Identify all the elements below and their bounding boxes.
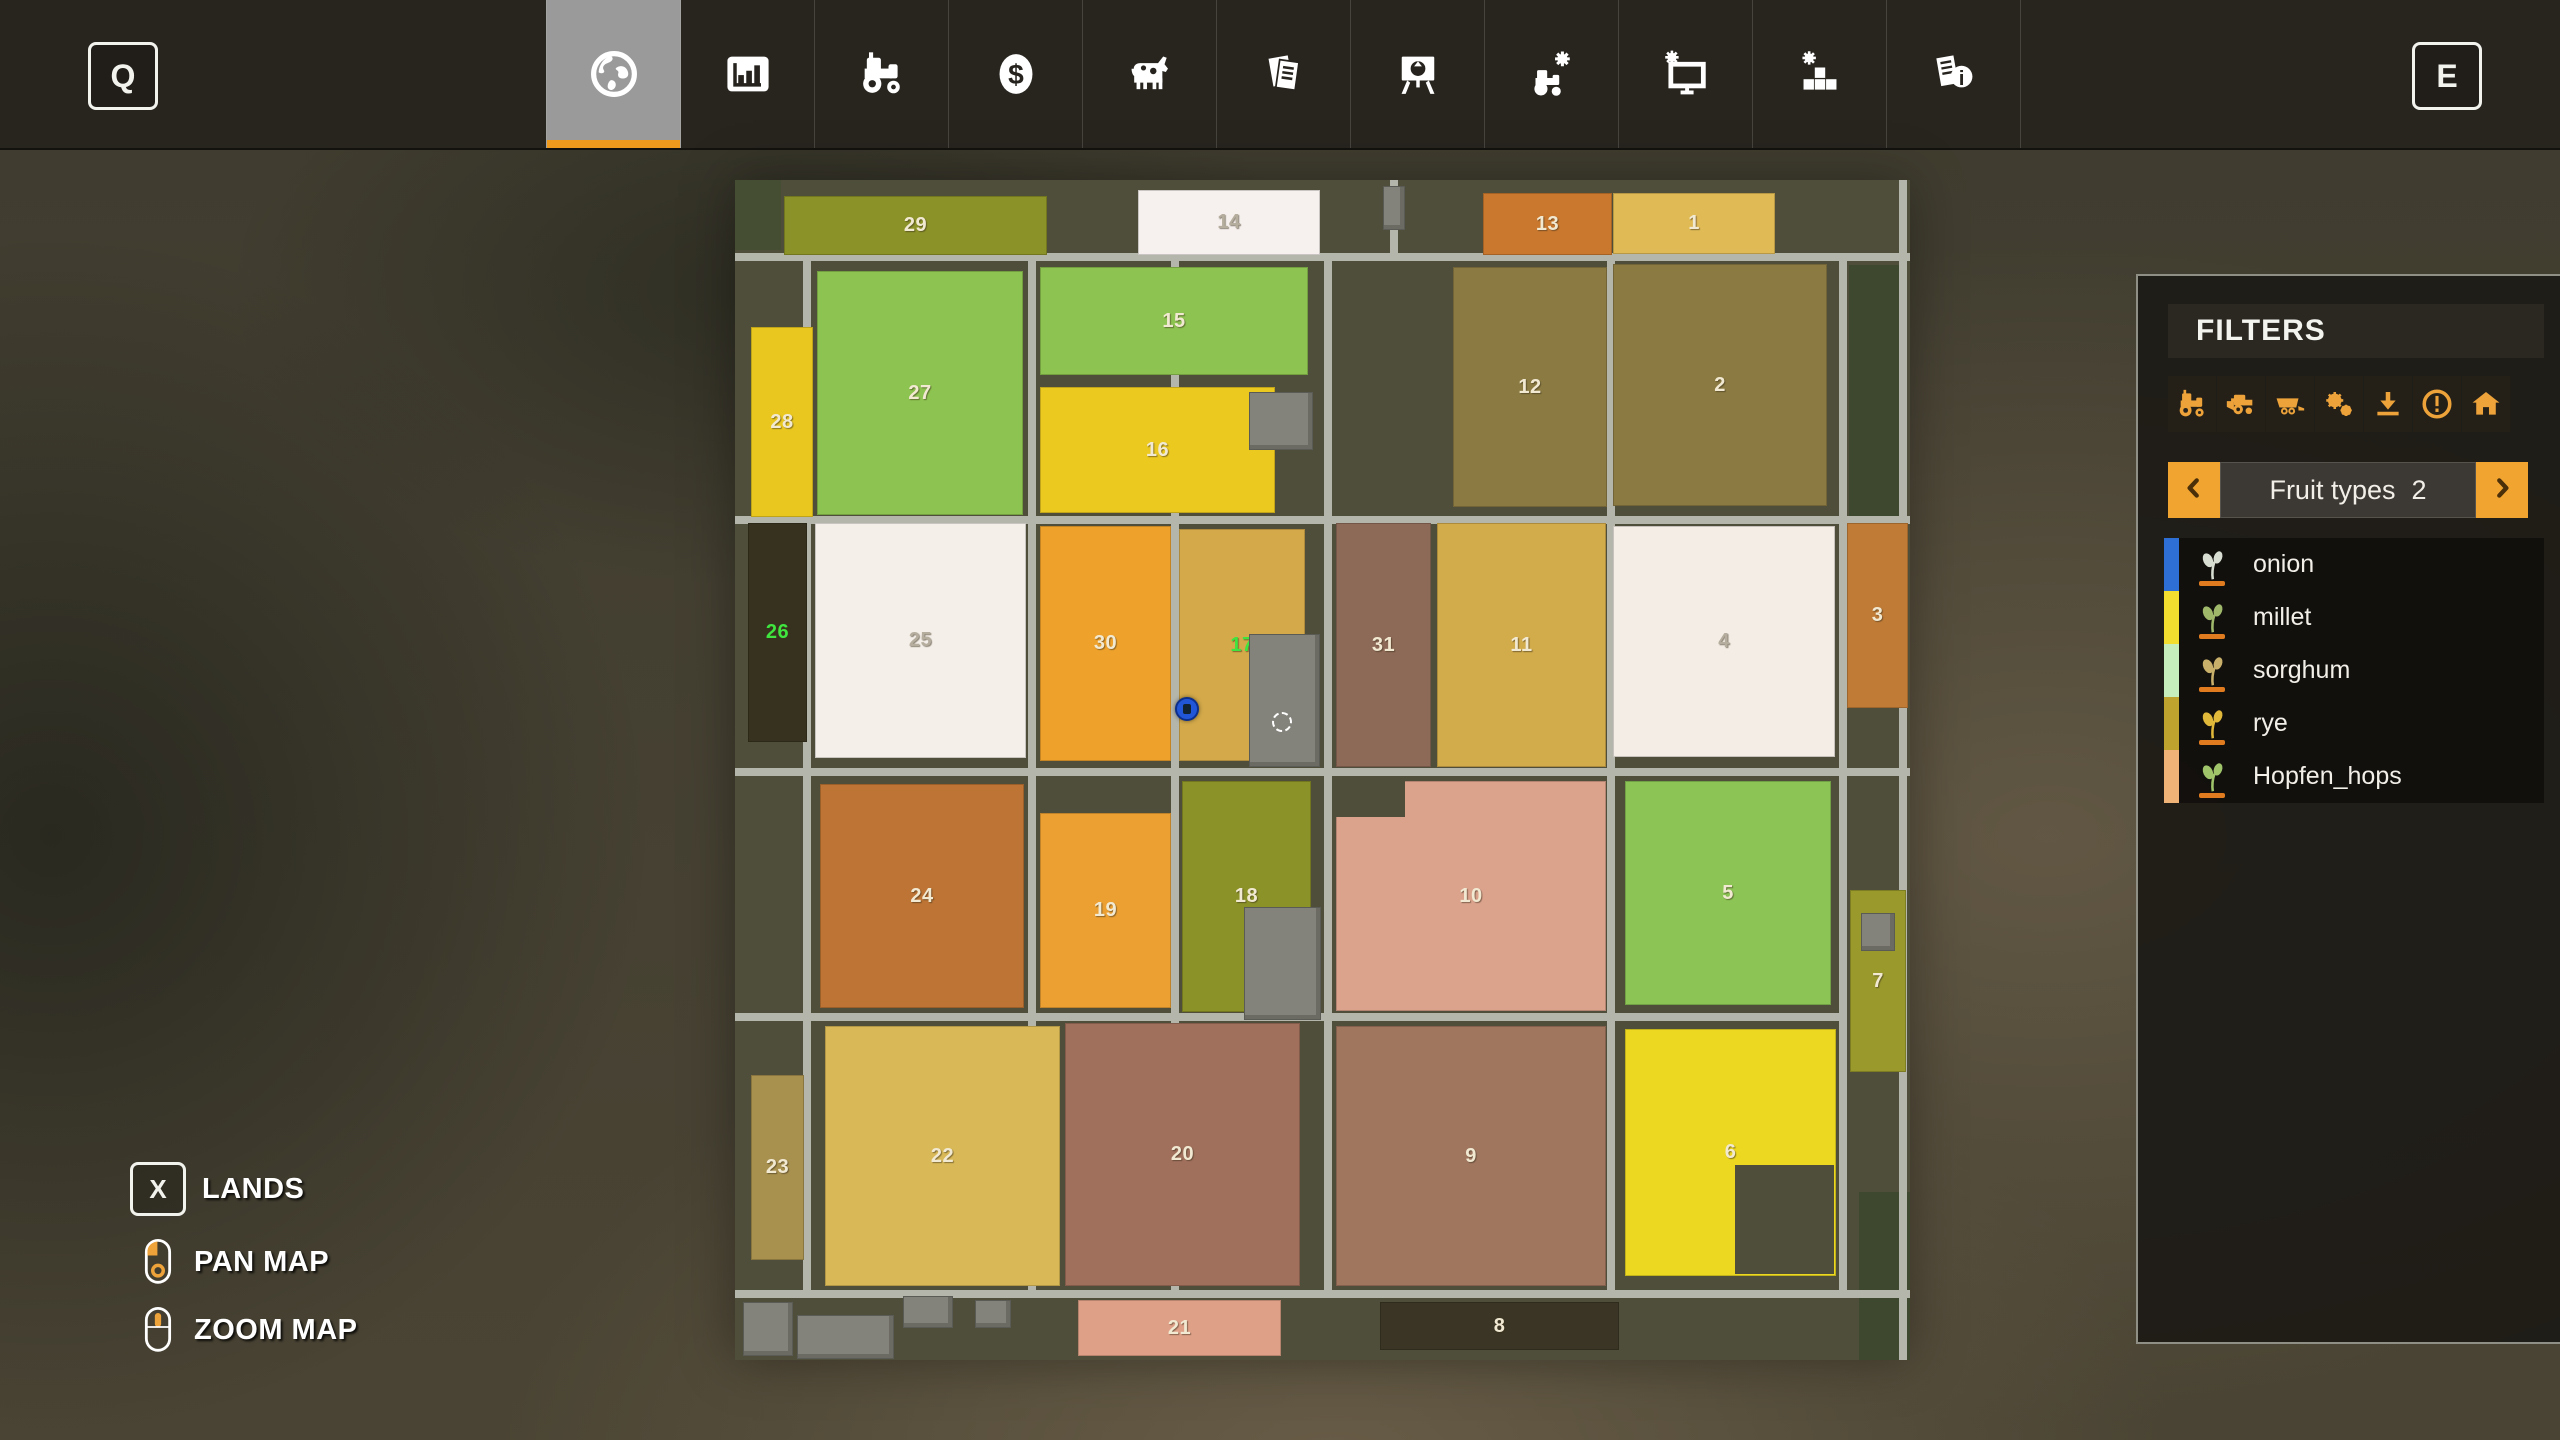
field-26[interactable]: 26 <box>748 523 807 742</box>
fruit-color-stripe <box>2164 644 2179 697</box>
filter-category-selector: Fruit types 2 <box>2168 462 2528 518</box>
filter-download-icon[interactable] <box>2364 376 2412 432</box>
field-number: 29 <box>904 214 927 237</box>
field-number: 16 <box>1146 439 1169 462</box>
monitor-gear-icon <box>1660 48 1712 100</box>
building <box>1861 913 1895 951</box>
svg-text:$: $ <box>1008 59 1024 90</box>
field-number: 8 <box>1494 1315 1506 1338</box>
tab-ai-workers[interactable] <box>1485 0 1619 148</box>
filters-panel: FILTERS Fruit types 2 onionmilletsorghum… <box>2136 274 2560 1344</box>
filter-icon-row <box>2168 376 2511 432</box>
tab-finances[interactable]: $ <box>949 0 1083 148</box>
field-16[interactable]: 16 <box>1040 387 1275 513</box>
field-24[interactable]: 24 <box>820 784 1024 1008</box>
tab-prices[interactable] <box>1351 0 1485 148</box>
tree-patch <box>1849 265 1904 525</box>
field-number: 15 <box>1162 310 1185 333</box>
fruit-crop-icon <box>2193 652 2231 690</box>
blocks-gear-icon <box>1794 48 1846 100</box>
fruit-color-stripe <box>2164 538 2179 591</box>
building <box>797 1315 894 1359</box>
building <box>1249 634 1320 767</box>
filter-warning-icon[interactable] <box>2413 376 2461 432</box>
field-number: 30 <box>1094 632 1117 655</box>
next-page-key-hint: E <box>2412 42 2482 110</box>
field-number: 25 <box>909 629 932 652</box>
field-14[interactable]: 14 <box>1138 190 1320 255</box>
tab-help[interactable]: i <box>1887 0 2021 148</box>
tree-patch <box>735 180 781 250</box>
tractor-gear-icon <box>1526 48 1578 100</box>
field-21[interactable]: 21 <box>1078 1300 1281 1356</box>
building <box>1244 907 1321 1020</box>
fs19-map-screen: { "topbar": { "left_key": "Q", "right_ke… <box>0 0 2560 1440</box>
field-number: 19 <box>1094 899 1117 922</box>
field-20[interactable]: 20 <box>1065 1023 1300 1286</box>
fruit-name: sorghum <box>2253 656 2350 685</box>
selector-prev-button[interactable] <box>2168 462 2220 518</box>
field-number: 26 <box>766 621 789 644</box>
tab-animals[interactable] <box>1083 0 1217 148</box>
field-number: 2 <box>1714 374 1726 397</box>
field-number: 31 <box>1372 634 1395 657</box>
filter-house-icon[interactable] <box>2462 376 2510 432</box>
field-number: 27 <box>908 382 931 405</box>
fruit-row-rye[interactable]: rye <box>2164 697 2544 750</box>
selector-next-button[interactable] <box>2476 462 2528 518</box>
field-9[interactable]: 9 <box>1336 1026 1606 1286</box>
fruit-color-stripe <box>2164 750 2179 803</box>
filter-harvester-icon[interactable] <box>2217 376 2265 432</box>
svg-text:i: i <box>1958 67 1964 90</box>
poi-circle-marker <box>1272 712 1292 732</box>
tab-general-settings[interactable] <box>1753 0 1887 148</box>
field-number: 3 <box>1872 604 1884 627</box>
fruit-row-sorghum[interactable]: sorghum <box>2164 644 2544 697</box>
road <box>1899 180 1907 1360</box>
field-12[interactable]: 12 <box>1453 267 1607 507</box>
field-22[interactable]: 22 <box>825 1026 1060 1286</box>
prev-page-key-hint: Q <box>88 42 158 110</box>
field-25[interactable]: 25 <box>815 523 1026 758</box>
field-31[interactable]: 31 <box>1336 523 1431 767</box>
lands-hint: X LANDS <box>130 1162 304 1216</box>
filter-gears-icon[interactable] <box>2315 376 2363 432</box>
filters-header: FILTERS <box>2168 304 2544 358</box>
field-number: 7 <box>1872 970 1884 993</box>
active-tab-underline <box>547 140 680 148</box>
player-marker <box>1175 697 1199 721</box>
field-1[interactable]: 1 <box>1613 193 1775 254</box>
field-notch <box>1336 781 1405 817</box>
field-number: 1 <box>1688 212 1700 235</box>
building <box>975 1300 1011 1328</box>
field-number: 28 <box>770 411 793 434</box>
fruit-crop-icon <box>2193 599 2231 637</box>
fruit-name: Hopfen_hops <box>2253 762 2402 791</box>
field-number: 9 <box>1465 1145 1477 1168</box>
field-number: 11 <box>1510 634 1532 657</box>
field-number: 21 <box>1168 1317 1191 1340</box>
field-2[interactable]: 2 <box>1613 264 1827 506</box>
fruit-row-millet[interactable]: millet <box>2164 591 2544 644</box>
road <box>735 768 1910 776</box>
field-number: 10 <box>1459 885 1482 908</box>
zoom-map-hint: ZOOM MAP <box>144 1306 358 1354</box>
field-number: 4 <box>1718 630 1730 653</box>
building <box>743 1302 793 1356</box>
field-23[interactable]: 23 <box>751 1075 804 1260</box>
field-15[interactable]: 15 <box>1040 267 1308 375</box>
road <box>1324 253 1332 1298</box>
field-number: 20 <box>1171 1143 1194 1166</box>
field-13[interactable]: 13 <box>1483 193 1612 255</box>
dollar-icon: $ <box>990 48 1042 100</box>
field-8[interactable]: 8 <box>1380 1302 1619 1350</box>
building <box>1249 392 1313 450</box>
zoom-map-label: ZOOM MAP <box>194 1314 358 1347</box>
globe-icon <box>588 48 640 100</box>
cow-icon <box>1124 48 1176 100</box>
lands-key-label: X <box>149 1174 166 1205</box>
fruit-color-stripe <box>2164 591 2179 644</box>
field-19[interactable]: 19 <box>1040 813 1171 1008</box>
tab-map[interactable] <box>546 0 681 148</box>
field-number: 18 <box>1235 885 1258 908</box>
field-number: 6 <box>1725 1141 1737 1164</box>
field-27[interactable]: 27 <box>817 271 1023 515</box>
field-number: 23 <box>766 1156 789 1179</box>
mouse-pan-icon <box>144 1238 172 1286</box>
fruit-crop-icon <box>2193 705 2231 743</box>
tab-contracts[interactable] <box>1217 0 1351 148</box>
tab-bar: $i <box>546 0 2021 148</box>
field-29[interactable]: 29 <box>784 196 1047 255</box>
chart-icon <box>722 48 774 100</box>
filters-title: FILTERS <box>2196 314 2326 348</box>
building <box>903 1296 953 1328</box>
fruit-crop-icon <box>2193 546 2231 584</box>
building <box>1383 186 1405 230</box>
lands-key-hint: X <box>130 1162 186 1216</box>
fruit-type-list: onionmilletsorghumryeHopfen_hops <box>2164 538 2544 803</box>
chevron-right-icon <box>2489 475 2515 506</box>
lands-label: LANDS <box>202 1173 304 1206</box>
field-number: 5 <box>1722 882 1734 905</box>
fruit-name: millet <box>2253 603 2311 632</box>
field-number: 22 <box>931 1145 954 1168</box>
easel-icon <box>1392 48 1444 100</box>
mouse-zoom-icon <box>144 1306 172 1354</box>
tractor-icon <box>856 48 908 100</box>
top-bar: Q $i E <box>0 0 2560 150</box>
pan-map-hint: PAN MAP <box>144 1238 329 1286</box>
fruit-color-stripe <box>2164 697 2179 750</box>
road <box>1839 253 1847 1298</box>
fruit-crop-icon <box>2193 758 2231 796</box>
fruit-row-onion[interactable]: onion <box>2164 538 2544 591</box>
filter-trailer-icon[interactable] <box>2266 376 2314 432</box>
map-canvas[interactable]: 2914131271516281222625301731114324191810… <box>735 180 1910 1360</box>
filter-tractor-icon[interactable] <box>2168 376 2216 432</box>
tab-vehicles[interactable] <box>815 0 949 148</box>
papers-icon <box>1258 48 1310 100</box>
field-4[interactable]: 4 <box>1613 526 1835 757</box>
field-notch <box>1735 1165 1834 1274</box>
tab-game-settings[interactable] <box>1619 0 1753 148</box>
chevron-left-icon <box>2181 475 2207 506</box>
tab-statistics[interactable] <box>681 0 815 148</box>
field-3[interactable]: 3 <box>1847 523 1908 708</box>
field-number: 12 <box>1518 376 1541 399</box>
selector-label: Fruit types <box>2269 475 2395 506</box>
field-number: 24 <box>910 885 933 908</box>
selector-count: 2 <box>2412 475 2427 506</box>
field-30[interactable]: 30 <box>1040 526 1171 761</box>
selector-value: Fruit types 2 <box>2220 462 2476 518</box>
fruit-row-Hopfen_hops[interactable]: Hopfen_hops <box>2164 750 2544 803</box>
fruit-name: rye <box>2253 709 2288 738</box>
field-number: 14 <box>1217 211 1240 234</box>
next-page-key-label: E <box>2436 58 2457 95</box>
pan-map-label: PAN MAP <box>194 1246 329 1279</box>
field-28[interactable]: 28 <box>751 327 813 517</box>
field-number: 13 <box>1536 213 1559 236</box>
prev-page-key-label: Q <box>111 58 136 95</box>
paper-info-icon: i <box>1928 48 1980 100</box>
fruit-name: onion <box>2253 550 2314 579</box>
field-5[interactable]: 5 <box>1625 781 1831 1005</box>
field-11[interactable]: 11 <box>1437 523 1606 767</box>
